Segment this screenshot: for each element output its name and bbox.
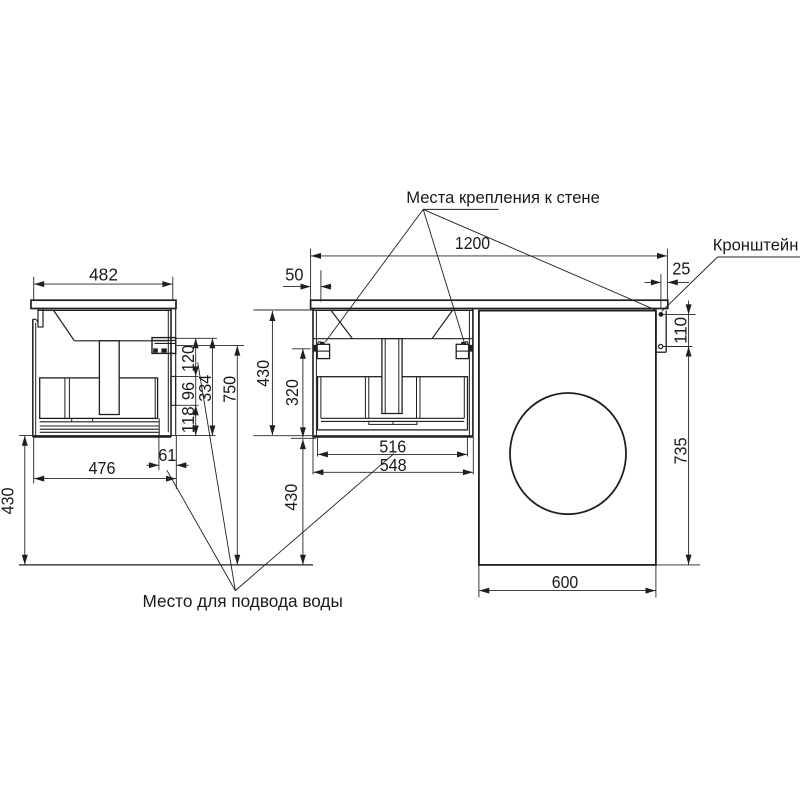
- svg-text:25: 25: [672, 259, 690, 279]
- svg-text:Места крепления к стене: Места крепления к стене: [406, 188, 600, 207]
- svg-text:61: 61: [158, 445, 176, 465]
- svg-text:Кронштейн: Кронштейн: [713, 236, 799, 255]
- svg-text:120: 120: [178, 345, 198, 372]
- svg-text:482: 482: [89, 265, 118, 285]
- svg-text:735: 735: [670, 438, 690, 465]
- svg-text:110: 110: [671, 317, 691, 344]
- svg-text:548: 548: [380, 455, 407, 475]
- svg-text:476: 476: [89, 458, 116, 478]
- svg-text:50: 50: [285, 264, 303, 284]
- svg-text:750: 750: [219, 376, 239, 403]
- svg-text:Место для подвода воды: Место для подвода воды: [143, 591, 343, 611]
- svg-text:516: 516: [379, 437, 406, 457]
- svg-text:320: 320: [282, 379, 302, 406]
- svg-text:334: 334: [195, 374, 215, 401]
- svg-text:430: 430: [0, 488, 18, 515]
- svg-text:600: 600: [552, 572, 579, 592]
- svg-text:430: 430: [281, 484, 301, 511]
- svg-text:430: 430: [253, 360, 273, 387]
- svg-text:118: 118: [178, 406, 198, 433]
